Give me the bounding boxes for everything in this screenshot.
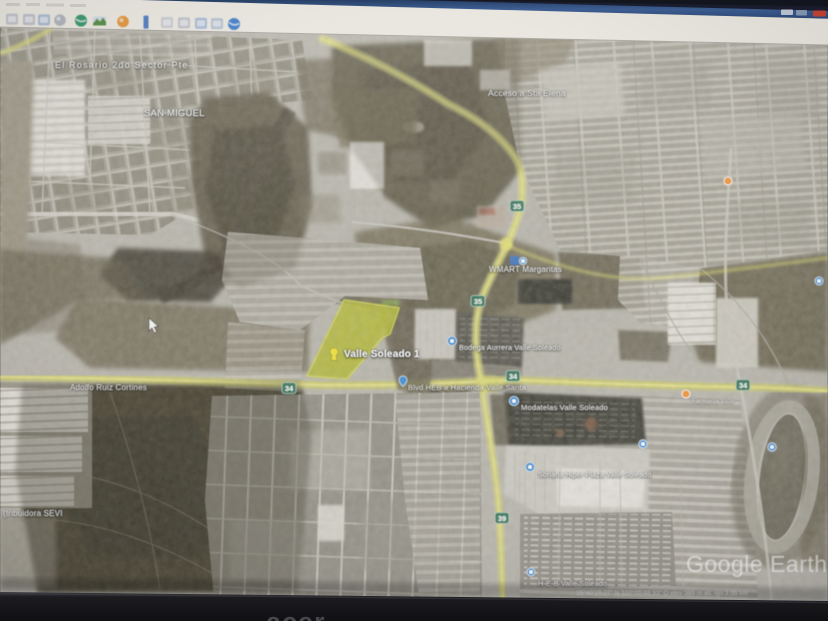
svg-text:acer: acer — [266, 607, 326, 621]
